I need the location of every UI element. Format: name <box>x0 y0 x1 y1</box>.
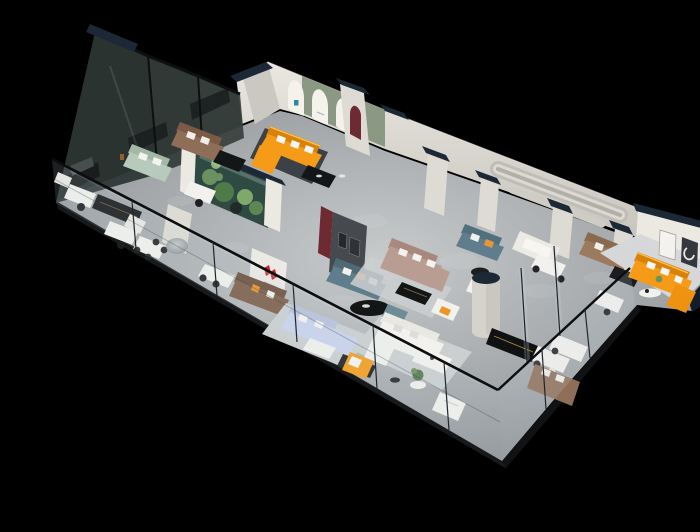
plant <box>656 276 663 283</box>
side-table <box>339 174 346 177</box>
wall-art <box>659 230 676 260</box>
round-coffee-table <box>639 289 661 298</box>
potted-plant <box>215 173 223 181</box>
column-cylinder <box>472 272 500 338</box>
wall-art <box>338 232 347 249</box>
floorplan-3d-render: 3D isometric cutaway render of a furnitu… <box>40 16 700 516</box>
arch-brand-logo <box>294 100 299 106</box>
maroon-arch-niche <box>350 106 361 140</box>
office-chair <box>195 199 203 207</box>
glass-office-accent <box>120 154 124 160</box>
floorplan-canvas <box>40 16 700 516</box>
